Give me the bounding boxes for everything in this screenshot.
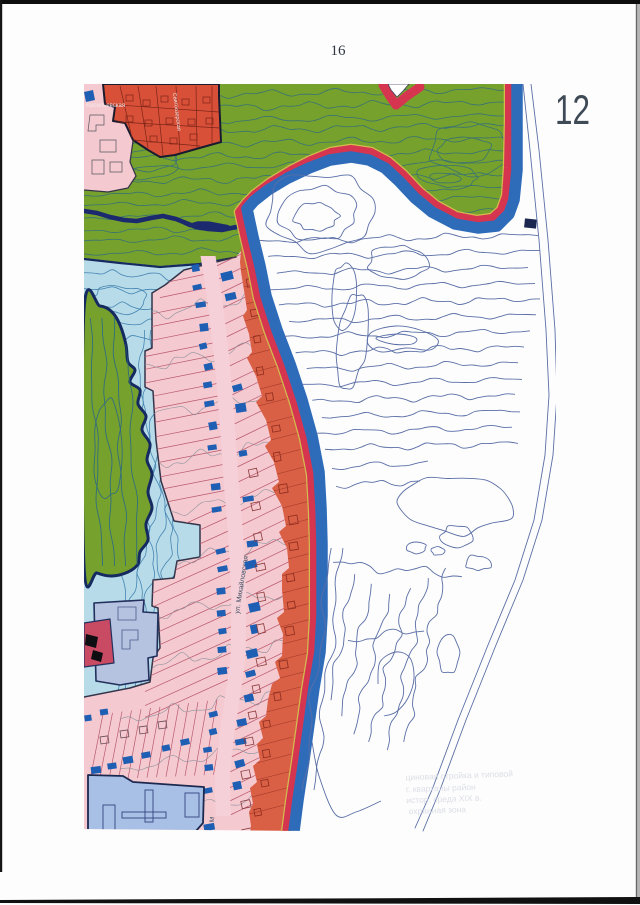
- svg-text:Васильевская: Васильевская: [86, 103, 125, 109]
- svg-text:16: 16: [331, 43, 347, 59]
- svg-text:охранная зона: охранная зона: [409, 804, 467, 816]
- svg-text:12: 12: [555, 86, 590, 133]
